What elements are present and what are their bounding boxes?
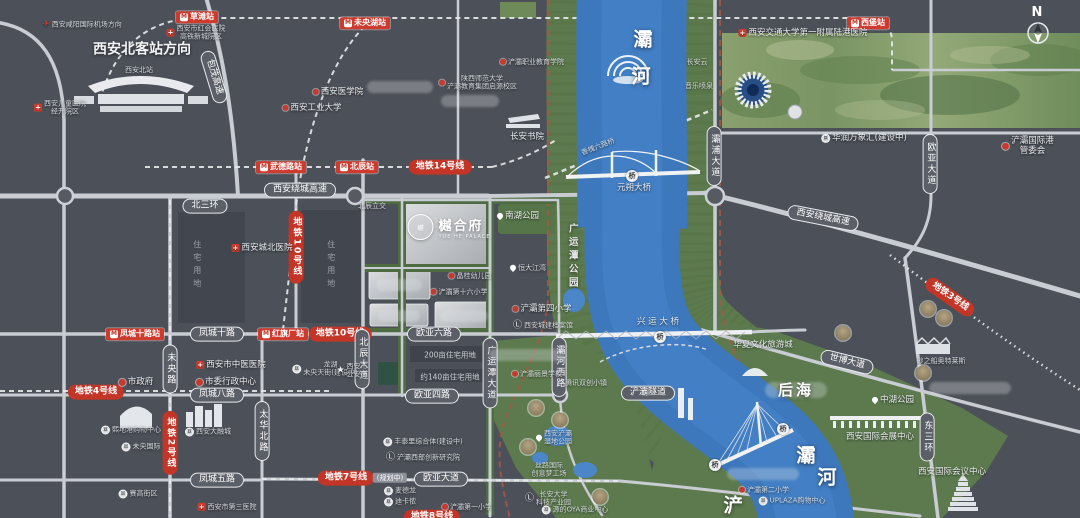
cart-icon: ¤ bbox=[101, 426, 110, 435]
road-raocheng-east: 西安绕城高速 bbox=[786, 204, 860, 232]
pin-icon bbox=[496, 212, 504, 220]
changan-cloud: 长安云 bbox=[687, 58, 708, 66]
cart-icon: ¤ bbox=[542, 506, 551, 515]
road-ouya-north: 欧亚大道 bbox=[923, 134, 938, 194]
road-ouya4: 欧亚四路 bbox=[405, 389, 459, 404]
chanhe-char: 浐 bbox=[723, 495, 742, 518]
guangyuntan-park: 广运潭公园 bbox=[566, 223, 577, 291]
chanba-16th-primary: 浐灞第十六小学 bbox=[431, 288, 488, 296]
cart-icon: ¤ bbox=[383, 438, 392, 447]
metro-icon: M bbox=[851, 19, 859, 27]
bahe-lower-char-2: 河 bbox=[817, 467, 836, 490]
hosp-icon: + bbox=[198, 503, 206, 511]
saige-block: ¤赛高街区 bbox=[119, 490, 158, 499]
parcel-140mu: 约140亩住宅用地 bbox=[420, 373, 479, 382]
road-shibo: 世博大道 bbox=[819, 348, 875, 375]
metro-icon: M bbox=[262, 330, 270, 338]
project-name-cn: 樾合府 bbox=[439, 215, 491, 234]
compass-letter: N bbox=[1032, 5, 1043, 21]
ghost-parcel-label-3 bbox=[440, 310, 488, 322]
landmark-medallion-2 bbox=[553, 413, 568, 428]
road-bahexilu: 灞河西路 bbox=[552, 337, 567, 397]
xidigang-mall: ¤熙地港购物中心 bbox=[101, 426, 161, 435]
edu-icon: Ⓛ bbox=[513, 321, 522, 332]
weiyang-international: ¤未央国际 bbox=[122, 443, 161, 452]
nanhu-park: 南湖公园 bbox=[497, 211, 539, 221]
tcm-hospital: +西安市中医医院 bbox=[196, 360, 266, 370]
intl-convention-exhibition-center: 西安国际会展中心 bbox=[846, 432, 914, 442]
landmark-medallion-7 bbox=[916, 366, 931, 381]
project-logo-ring-icon: 樾 bbox=[408, 214, 434, 240]
metro-icon: M bbox=[340, 163, 348, 171]
hosp-icon: + bbox=[196, 361, 204, 369]
road-dongsanhuan: 东三环 bbox=[920, 413, 935, 462]
changan-academy: 长安书院 bbox=[510, 132, 544, 142]
bridge-badge-cable: 桥 bbox=[777, 423, 789, 435]
sch-icon bbox=[431, 289, 437, 295]
metro-icon: M bbox=[180, 13, 188, 21]
road-weiyang: 未央路 bbox=[163, 345, 178, 394]
jiaotong-hospital: +西安交通大学第一附属陆港医院 bbox=[738, 28, 867, 38]
mixc-mall: ¤华润万象汇(建设中) bbox=[821, 133, 907, 143]
road-taihua: 太华北路 bbox=[255, 401, 270, 461]
third-hospital: +西安市第三医院 bbox=[198, 503, 257, 511]
metro-icon: M bbox=[110, 330, 118, 338]
north-station-caption: 西安北站 bbox=[125, 66, 153, 74]
station-beichen: M北辰站 bbox=[336, 161, 378, 173]
pin-icon bbox=[535, 434, 543, 442]
residential-parcel-label-1: 住宅用地 bbox=[192, 240, 202, 292]
chanba-wetland-park: 西安浐灞 湿地公园 bbox=[536, 430, 572, 447]
project-name-en: YUE HE PALACE bbox=[439, 234, 491, 240]
sch-icon bbox=[512, 306, 518, 312]
bahe-char-1: 灞 bbox=[633, 29, 652, 52]
cart-icon: ¤ bbox=[185, 428, 194, 437]
silkroad-dream-works: 丝路国际 创意梦工场 bbox=[532, 462, 567, 479]
metro-line-4: 地铁4号线 bbox=[68, 385, 124, 400]
yuanshuo-bridge-label: 元朔大桥 bbox=[617, 183, 651, 193]
chanba-2nd-primary: 浐灞第二小学 bbox=[739, 486, 789, 494]
public-security-bureau: ★西安市 公安局 bbox=[336, 363, 367, 380]
parcel-200mu: 200亩住宅用地 bbox=[424, 351, 476, 360]
pin-icon bbox=[871, 396, 879, 404]
shaanxi-normal-university: 陕西师范大学 浐灞教育集团启源校区 bbox=[439, 75, 517, 92]
plane-icon: ✈ bbox=[42, 20, 50, 31]
sch-icon bbox=[449, 273, 455, 279]
hosp-icon: + bbox=[34, 104, 42, 112]
project-logo: 樾 樾合府 YUE HE PALACE bbox=[408, 214, 491, 240]
hosp-icon: + bbox=[167, 29, 175, 37]
metro-icon: M bbox=[344, 19, 352, 27]
station-fengchengshilu: M凤城十路站 bbox=[106, 328, 164, 340]
station-hongqichang: M红旗厂站 bbox=[258, 328, 308, 340]
landmark-medallion-5 bbox=[921, 302, 936, 317]
landmark-medallion-4 bbox=[593, 490, 608, 505]
metro-line-14: 地铁14号线 bbox=[409, 160, 472, 175]
intl-conference-center: 西安国际会议中心 bbox=[918, 467, 986, 477]
tencent-town: 腾讯双创小镇 bbox=[565, 379, 607, 387]
edu-icon: Ⓛ bbox=[525, 494, 534, 505]
xian-medical-college: 西安医学院 bbox=[313, 87, 364, 97]
residential-parcel-label-2: 住宅用地 bbox=[326, 240, 336, 292]
chanba-tunnel: 浐灞隧道 bbox=[621, 386, 675, 401]
metro-icon: M bbox=[260, 163, 268, 171]
xianghuai-bridge-label: 香槐六路桥 bbox=[580, 137, 616, 157]
metro-line-2-vertical: 地铁2号线 bbox=[163, 411, 178, 475]
bridge-badge-yuanshuo: 桥 bbox=[626, 170, 638, 182]
cart-icon: ¤ bbox=[384, 498, 393, 507]
sch-icon bbox=[282, 105, 288, 111]
road-bapu: 灞浦大道 bbox=[707, 126, 722, 186]
ghost-label-2 bbox=[441, 95, 499, 107]
cart-icon: ¤ bbox=[384, 487, 393, 496]
ghost-label-3 bbox=[489, 349, 565, 361]
bridge-badge-south: 桥 bbox=[709, 459, 721, 471]
jinggui-kindergarten: 晶桂幼儿园 bbox=[449, 272, 492, 280]
sch-icon bbox=[512, 371, 518, 377]
sch-icon bbox=[313, 89, 319, 95]
road-ouyadadao: 欧亚大道 bbox=[414, 472, 468, 487]
cart-icon: ¤ bbox=[292, 365, 301, 374]
cart-icon: ¤ bbox=[122, 443, 131, 452]
children-hospital: +西安儿童医院 经开院区 bbox=[34, 100, 86, 117]
road-fengcheng10: 凤城十路 bbox=[190, 327, 244, 342]
metro-line-7: 地铁7号线 bbox=[318, 471, 374, 486]
uplaza-mall: ¤UPLAZA购物中心 bbox=[759, 497, 826, 506]
edu-icon: Ⓛ bbox=[386, 453, 395, 464]
bahe-lower-char-1: 灞 bbox=[796, 445, 815, 468]
station-wudelu: M武德路站 bbox=[256, 161, 306, 173]
location-map: M草滩站M未央湖站M西堡站M武德路站M北辰站M凤城十路站M红旗厂站地铁14号线地… bbox=[0, 0, 1080, 518]
airport-direction: ✈西安咸阳国际机场方向 bbox=[42, 20, 122, 31]
chanba-vocational-college: 浐灞职业教育学院 bbox=[500, 58, 564, 66]
bahe-char-2: 河 bbox=[631, 66, 650, 89]
sch-icon bbox=[500, 59, 506, 65]
chanba-lijing-school: 浐灞丽景学校 bbox=[512, 370, 562, 378]
houhai: 后海 bbox=[778, 381, 814, 399]
sch-icon bbox=[442, 504, 448, 510]
road-fengcheng8: 凤城八路 bbox=[190, 388, 244, 403]
road-fengcheng5: 凤城五路 bbox=[190, 473, 244, 488]
music-fountain: 音乐喷泉 bbox=[685, 82, 713, 90]
honghui-hospital: +西安市红会医院 高铁新城院区 bbox=[167, 25, 226, 42]
metro-market: ¤麦德龙 bbox=[384, 487, 416, 496]
city-government: 市政府 bbox=[119, 377, 154, 387]
bridge-badge-xingyun: 桥 bbox=[654, 331, 666, 343]
metro-line-7-planned-tag: (规划中) bbox=[373, 473, 407, 483]
road-beichen-avenue: 北辰大道 bbox=[355, 329, 370, 389]
north-station-direction: 西安北客站方向 bbox=[93, 42, 191, 59]
cart-icon: ¤ bbox=[759, 497, 768, 506]
pin-icon bbox=[509, 264, 517, 272]
road-beisanhuan: 北三环 bbox=[182, 199, 227, 214]
road-raocheng-west: 西安绕城高速 bbox=[264, 183, 336, 198]
ghost-label-5 bbox=[929, 382, 1011, 394]
oya-commercial-center: ¤源的OYA商业中心 bbox=[542, 506, 609, 515]
landmark-medallion-1 bbox=[529, 401, 544, 416]
urban-archives: Ⓛ西安城建档案馆 bbox=[513, 321, 573, 332]
landmark-medallion-3 bbox=[521, 440, 536, 455]
port-admin-committee: 浐灞国际港管委会 bbox=[1002, 136, 1054, 156]
landmark-medallion-6 bbox=[937, 311, 952, 326]
cart-icon: ¤ bbox=[821, 134, 830, 143]
west-innovation-institute: Ⓛ浐灞西部创新研究院 bbox=[386, 453, 460, 464]
huaxia-culture-city: 华夏文化旅游城 bbox=[733, 340, 793, 350]
hosp-icon: + bbox=[738, 29, 746, 37]
sch-icon bbox=[739, 487, 745, 493]
road-baomao: 包茂高速 bbox=[199, 49, 229, 105]
sasseur-outlets: 砂之船奥特莱斯 bbox=[917, 357, 966, 365]
landmark-medallion-8 bbox=[836, 326, 851, 341]
cart-icon: ¤ bbox=[119, 490, 128, 499]
municipal-admin-center: 市委行政中心 bbox=[196, 377, 256, 387]
chanba-4th-primary: 浐灞第四小学 bbox=[512, 304, 571, 314]
ghost-parcel-label-2 bbox=[378, 310, 420, 322]
beichen-interchange: 北辰立交 bbox=[358, 202, 386, 210]
station-weiyanghu: M未央湖站 bbox=[340, 17, 390, 29]
station-caotan: M草滩站 bbox=[176, 11, 218, 23]
ghost-label-1 bbox=[367, 81, 433, 93]
govt-icon bbox=[119, 379, 126, 386]
ghost-parcel-label-1 bbox=[376, 279, 422, 291]
govt-icon bbox=[196, 379, 203, 386]
chanba-1st-primary: 浐灞第一小学 bbox=[442, 503, 492, 511]
labels-layer: M草滩站M未央湖站M西堡站M武德路站M北辰站M凤城十路站M红旗厂站地铁14号线地… bbox=[0, 0, 1080, 518]
xian-technological-university: 西安工业大学 bbox=[282, 103, 341, 113]
chengbei-hospital: +西安城北医院 bbox=[231, 243, 292, 253]
govt-icon bbox=[1002, 143, 1009, 150]
decathlon: ¤迪卡侬 bbox=[384, 498, 416, 507]
zhonghu-park: 中湖公园 bbox=[872, 395, 914, 405]
road-ouya6: 欧亚六路 bbox=[407, 327, 461, 342]
hengda-jiangwan: 恒大江湾 bbox=[510, 264, 546, 272]
xingyun-bridge-label: 兴 运 大 桥 bbox=[637, 317, 679, 327]
hosp-icon: + bbox=[231, 244, 239, 252]
star-icon: ★ bbox=[336, 366, 344, 377]
sch-icon bbox=[439, 80, 445, 86]
fengtaili-complex: ¤丰泰里综合体(建设中) bbox=[383, 438, 462, 447]
ghost-label-4 bbox=[727, 468, 799, 480]
darongcheng-mall: ¤西安大融城 bbox=[185, 428, 231, 437]
